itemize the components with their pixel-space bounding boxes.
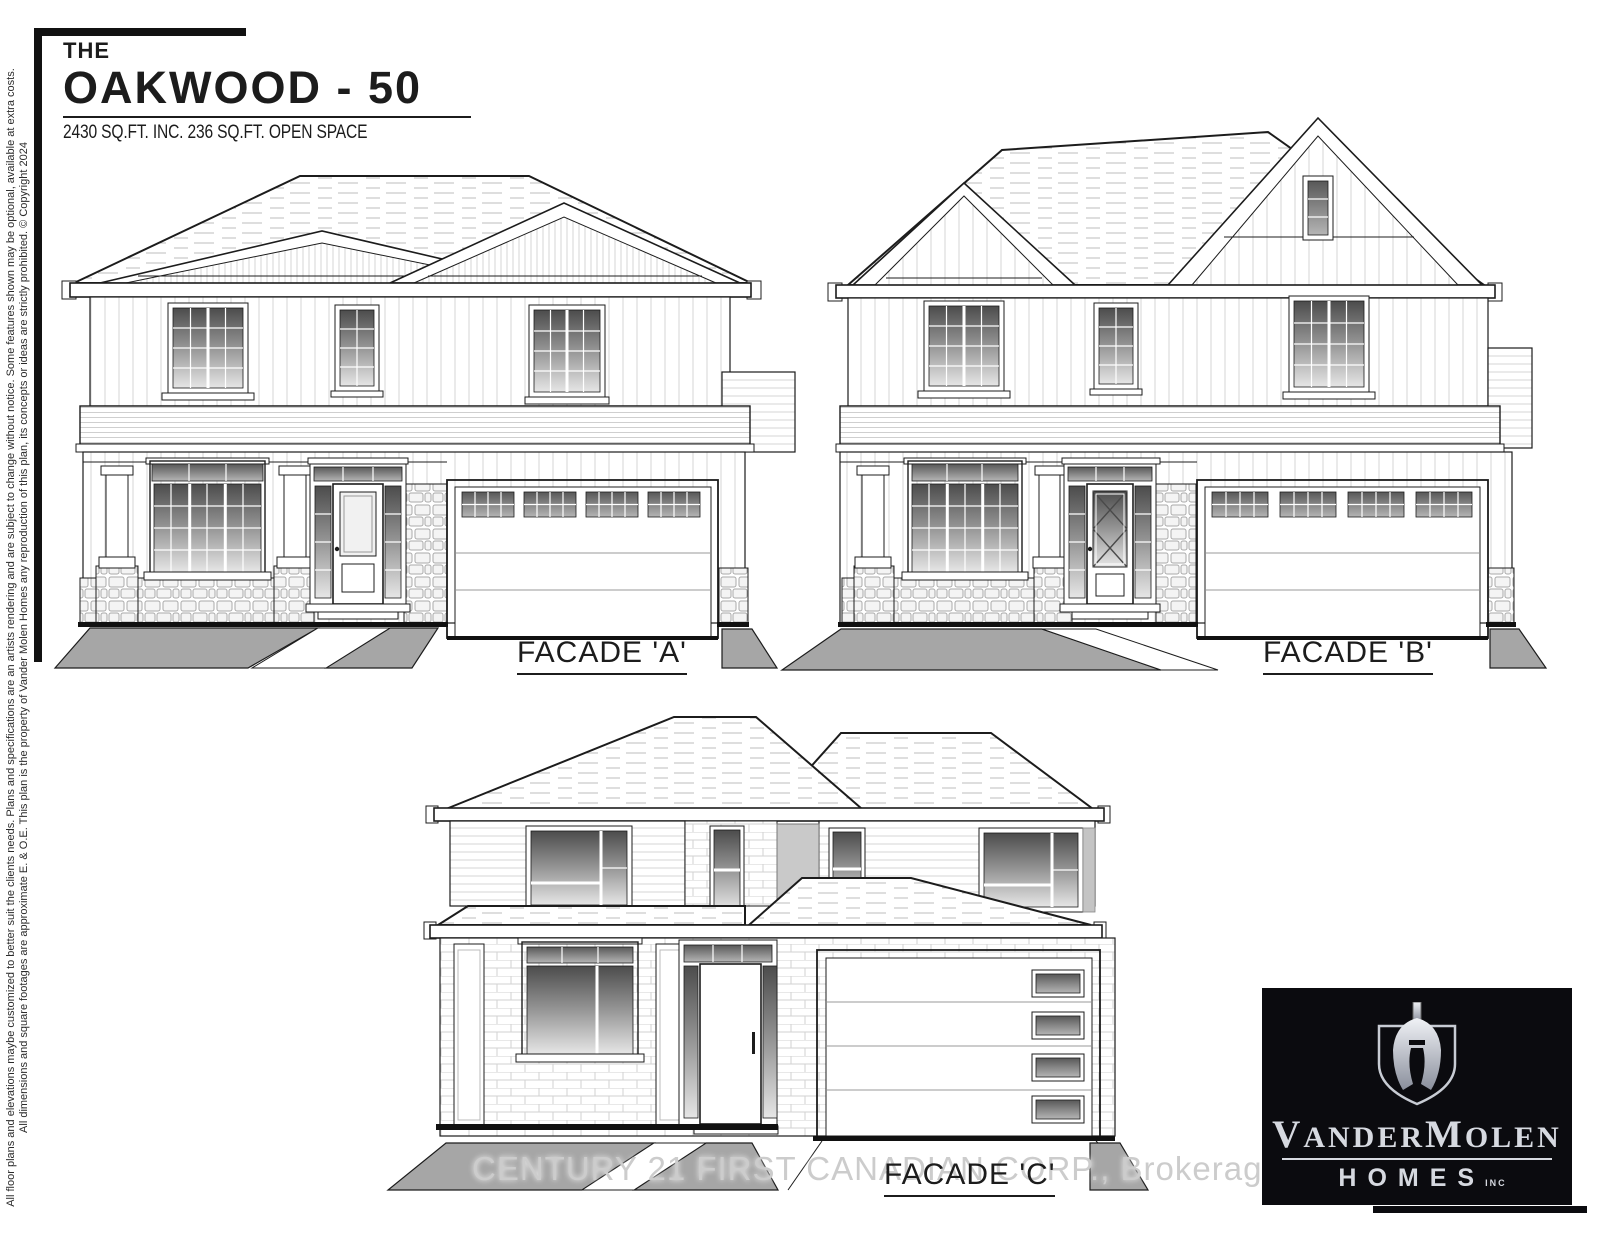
brokerage-watermark: CENTURY 21 FIRST CANADIAN CORP., Brokera…: [472, 1150, 1282, 1188]
facade-b-drawing: [782, 118, 1546, 670]
vandermolen-logo: VANDERMOLEN HOMESINC: [1262, 988, 1572, 1205]
facade-b-front-door: [1060, 458, 1160, 619]
facade-b-roof: [828, 118, 1502, 301]
facade-b-second-floor: [836, 296, 1532, 452]
facade-c-upper-window-left: [526, 826, 632, 910]
facade-b-label: FACADE 'B': [1263, 636, 1433, 675]
plan-sheet: THE OAKWOOD - 50 2430 SQ.FT. INC. 236 SQ…: [0, 0, 1600, 1237]
facade-b-first-floor: [838, 452, 1516, 640]
facade-c-roof: [426, 717, 1110, 823]
facade-a-upper-window-center: [331, 305, 383, 397]
facade-a-label: FACADE 'A': [517, 636, 687, 675]
facade-b-upper-window-center: [1090, 303, 1142, 395]
facade-a-second-floor: [76, 297, 795, 452]
logo-homes: HOMESINC: [1262, 1164, 1572, 1193]
facade-a-front-door: [306, 458, 410, 619]
facade-c-drawing: [388, 717, 1148, 1190]
facade-c-label: FACADE 'C': [884, 1158, 1055, 1197]
facade-c-lower-window: [516, 938, 644, 1062]
logo-bottom-bar: [1373, 1206, 1587, 1213]
facade-a-upper-window-right: [525, 305, 609, 404]
facade-a-roof: [62, 176, 761, 299]
facade-a-upper-window-left: [162, 303, 254, 400]
facade-a-garage-door: [447, 480, 718, 638]
disclaimer-line-2: All dimensions and square footages are a…: [18, 40, 31, 1235]
disclaimer-text: All floor plans and elevations maybe cus…: [5, 40, 31, 1235]
disclaimer-line-1: All floor plans and elevations maybe cus…: [5, 40, 18, 1235]
facade-b-lower-window: [902, 458, 1028, 580]
facade-b-upper-window-right: [1283, 296, 1375, 399]
facade-b-upper-window-left: [918, 301, 1010, 398]
spartan-helmet-icon: [1369, 1002, 1465, 1108]
facade-a-lower-window: [144, 458, 271, 580]
facade-a-drawing: [55, 176, 795, 668]
facade-b-garage-door: [1197, 480, 1488, 638]
facade-c-upper-window-center: [710, 826, 744, 914]
facade-b-attic-window: [1303, 176, 1333, 240]
logo-divider: [1282, 1158, 1552, 1160]
facade-c-garage-door: [817, 950, 1100, 1138]
logo-name: VANDERMOLEN: [1262, 1112, 1572, 1157]
facade-c-front-door: [679, 940, 778, 1134]
facade-a-first-floor: [78, 452, 749, 640]
